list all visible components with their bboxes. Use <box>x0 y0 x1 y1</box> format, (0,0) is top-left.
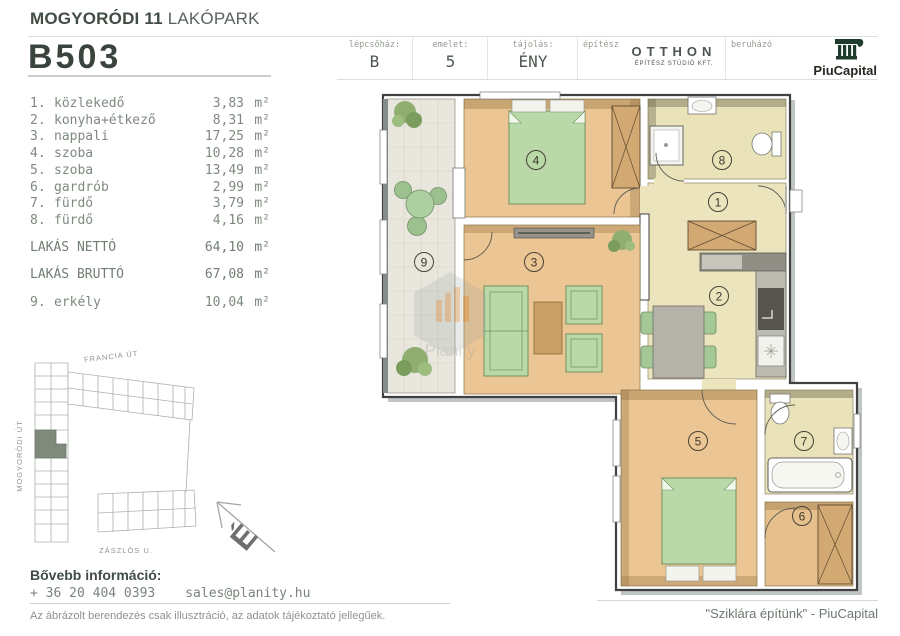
svg-text:4: 4 <box>533 154 540 168</box>
developer-label: beruházó <box>731 40 772 50</box>
interior-wall <box>640 214 649 300</box>
armchair <box>566 334 602 372</box>
street-label-mogyorodi: MOGYORÓDI ÚT <box>15 420 24 492</box>
unit-code-underline <box>28 75 271 77</box>
architect-label: építész <box>583 40 619 50</box>
project-title-bold: MOGYORÓDI 11 <box>30 9 163 28</box>
room-row: 2.konyha+étkező8,31m² <box>30 113 270 130</box>
staircase-value: B <box>337 52 412 71</box>
staircase-label: lépcsőház: <box>337 40 412 50</box>
room-row: 6.gardrób2,99m² <box>30 180 270 197</box>
architect-subtitle: ÉPÍTÉSZ STÚDIÓ KFT. <box>624 61 724 67</box>
svg-text:5: 5 <box>695 435 702 449</box>
contact-row: + 36 20 404 0393sales@planity.hu <box>30 586 310 601</box>
info-cell-developer: beruházó PiuCapital <box>725 37 879 79</box>
floorplan-datasheet: MOGYORÓDI 11 LAKÓPARK B503 lépcsőház: B … <box>0 0 900 636</box>
room-6-closet <box>765 502 853 586</box>
disclaimer-text: Az ábrázolt berendezés csak illusztráció… <box>30 610 385 622</box>
street-label-francia: FRANCIA ÚT <box>84 349 139 365</box>
sofa <box>484 286 528 376</box>
developer-name: PiuCapital <box>813 63 877 78</box>
svg-text:6: 6 <box>799 510 806 524</box>
window <box>854 414 860 448</box>
company-slogan: "Sziklára építünk" - PiuCapital <box>597 606 878 621</box>
svg-text:9: 9 <box>421 256 428 270</box>
stove <box>758 288 784 330</box>
slogan-divider <box>597 600 878 601</box>
wardrobe <box>818 505 852 584</box>
room-row: 1.közlekedő3,83m² <box>30 96 270 113</box>
project-title: MOGYORÓDI 11 LAKÓPARK <box>30 9 260 29</box>
info-cell-architect: építész OTTHON ÉPÍTÉSZ STÚDIÓ KFT. <box>577 37 726 79</box>
armchair <box>566 286 602 324</box>
floor-plan: Planity 1 2 3 4 5 6 7 8 9 <box>370 86 884 598</box>
svg-text:7: 7 <box>801 435 808 449</box>
info-cell-orientation: tájolás: ÉNY <box>487 37 578 79</box>
bed <box>509 111 585 204</box>
bed <box>662 478 736 564</box>
total-net-row: LAKÁS NETTÓ64,10m² <box>30 240 270 257</box>
svg-text:8: 8 <box>719 154 726 168</box>
unit-code: B503 <box>28 38 121 77</box>
orientation-label: tájolás: <box>488 40 578 50</box>
bathtub <box>768 458 852 492</box>
total-gross-row: LAKÁS BRUTTÓ67,08m² <box>30 267 270 284</box>
room-8-bathroom <box>648 97 786 179</box>
compass-north-icon: É <box>205 490 310 575</box>
coffee-table <box>534 302 562 354</box>
room-3-living <box>464 225 640 394</box>
hall-wardrobe <box>688 221 756 250</box>
compass-north-letter: É <box>223 517 264 556</box>
toilet <box>752 132 781 156</box>
svg-text:2: 2 <box>716 290 723 304</box>
street-label-zaszlos: ZÁSZLÓS U. <box>99 546 153 555</box>
project-title-light: LAKÓPARK <box>163 9 260 28</box>
room-row: 3.nappali17,25m² <box>30 129 270 146</box>
room-7-bathroom <box>765 390 860 494</box>
orientation-value: ÉNY <box>488 52 578 71</box>
wardrobe <box>612 106 640 188</box>
room-5-bedroom <box>613 390 757 586</box>
info-strip: lépcsőház: B emelet: 5 tájolás: ÉNY épít… <box>337 37 878 80</box>
watermark-text: Planity <box>424 341 476 360</box>
architect-name: OTTHON <box>624 44 724 59</box>
room-row: 5.szoba13,49m² <box>30 163 270 180</box>
entry-threshold <box>790 190 802 212</box>
floor-value: 5 <box>413 52 488 71</box>
architect-logo: OTTHON ÉPÍTÉSZ STÚDIÓ KFT. <box>624 44 724 67</box>
contact-divider <box>30 603 450 604</box>
site-map: FRANCIA ÚT MOGYORÓDI ÚT ZÁSZLÓS U. <box>8 346 198 558</box>
room-4-bedroom <box>464 92 640 217</box>
window <box>613 420 620 466</box>
room-row: 4.szoba10,28m² <box>30 146 270 163</box>
room-row: 8.fürdő4,16m² <box>30 213 270 230</box>
window <box>613 476 620 522</box>
piucapital-icon <box>831 38 865 64</box>
info-cell-floor: emelet: 5 <box>412 37 488 79</box>
contact-phone: + 36 20 404 0393 <box>30 586 155 601</box>
floor-label: emelet: <box>413 40 488 50</box>
window <box>480 92 560 99</box>
svg-text:3: 3 <box>531 256 538 270</box>
room-list: 1.közlekedő3,83m² 2.konyha+étkező8,31m² … <box>30 96 270 312</box>
contact-email[interactable]: sales@planity.hu <box>185 586 310 601</box>
balcony-row: 9.erkély10,04m² <box>30 295 270 312</box>
room-row: 7.fürdő3,79m² <box>30 196 270 213</box>
balcony-door <box>453 168 465 218</box>
shower <box>650 126 683 165</box>
info-cell-staircase: lépcsőház: B <box>337 37 412 79</box>
contact-heading: Bővebb információ: <box>30 567 161 583</box>
svg-text:1: 1 <box>715 196 722 210</box>
